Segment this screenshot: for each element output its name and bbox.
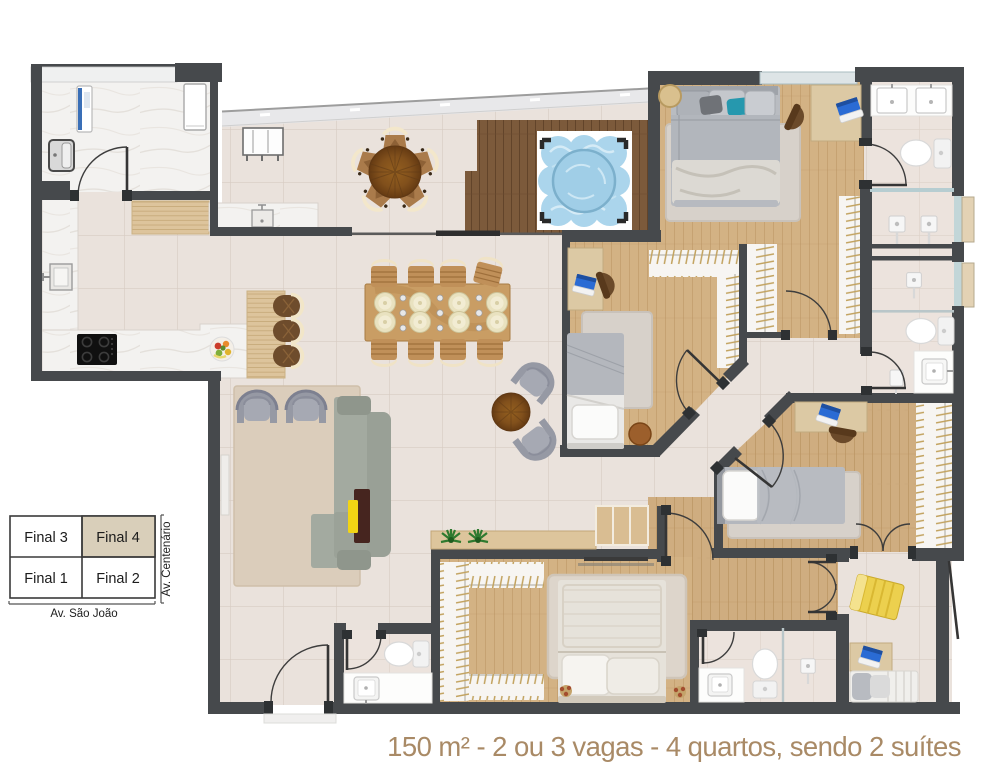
svg-text:Final 1: Final 1	[24, 571, 68, 587]
svg-text:Final 4: Final 4	[96, 530, 140, 546]
svg-text:150 m² - 2 ou 3 vagas - 4 quar: 150 m² - 2 ou 3 vagas - 4 quartos, sendo…	[387, 731, 961, 762]
svg-text:Final 2: Final 2	[96, 571, 140, 587]
svg-text:Av. São João: Av. São João	[50, 608, 117, 620]
svg-text:Av. Centenário: Av. Centenário	[161, 521, 173, 596]
svg-text:Final 3: Final 3	[24, 530, 68, 546]
